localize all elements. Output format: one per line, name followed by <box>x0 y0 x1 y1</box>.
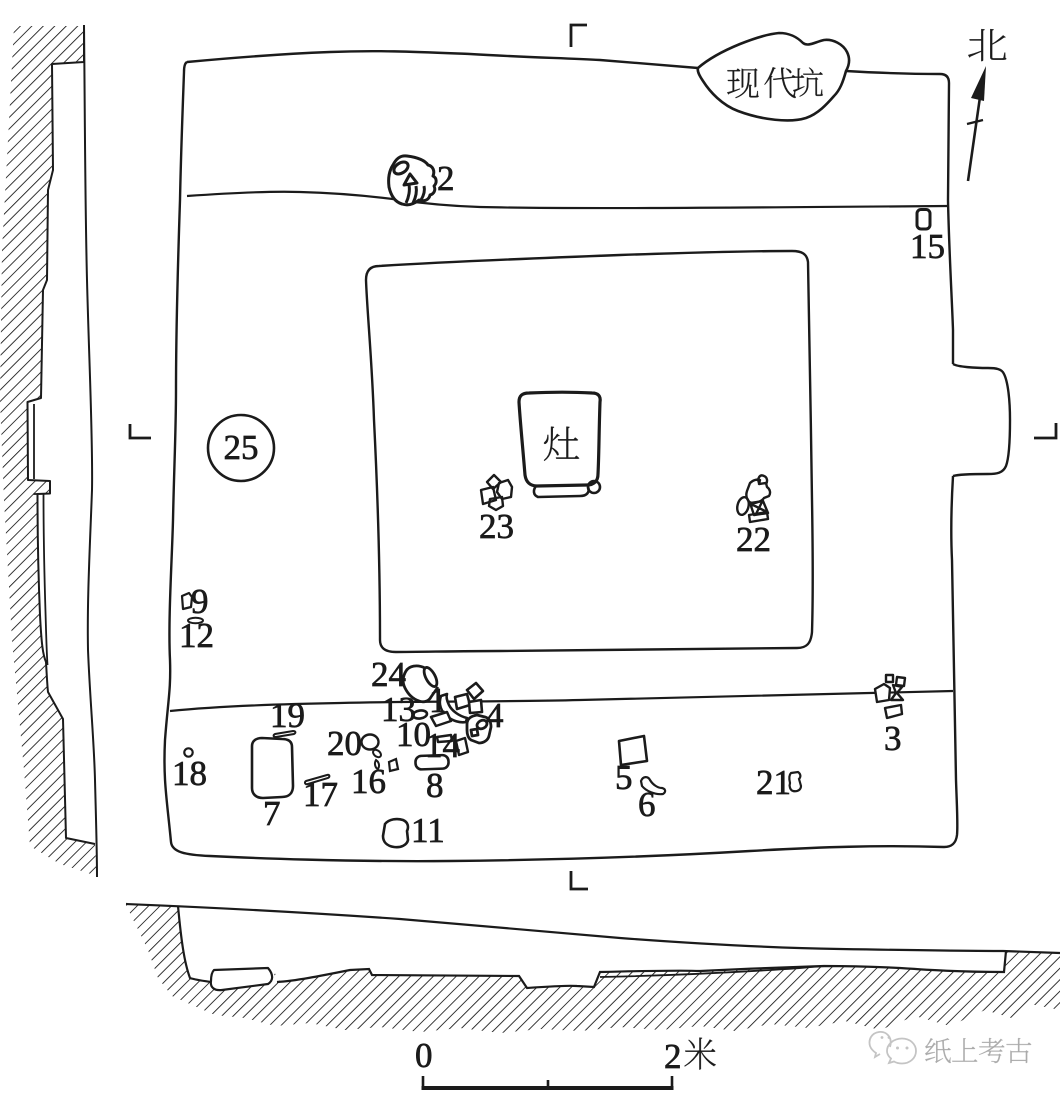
svg-text:15: 15 <box>910 227 945 266</box>
svg-text:4: 4 <box>486 696 504 735</box>
svg-text:5: 5 <box>615 758 633 797</box>
svg-text:17: 17 <box>303 775 338 814</box>
svg-text:19: 19 <box>270 696 305 735</box>
svg-text:3: 3 <box>884 719 902 758</box>
svg-text:21: 21 <box>756 763 791 802</box>
svg-text:2: 2 <box>437 159 455 198</box>
svg-text:23: 23 <box>479 507 514 546</box>
svg-text:20: 20 <box>327 724 362 763</box>
svg-text:7: 7 <box>263 794 281 833</box>
svg-text:0: 0 <box>415 1036 433 1075</box>
svg-text:18: 18 <box>172 754 207 793</box>
svg-text:8: 8 <box>426 766 444 805</box>
svg-text:16: 16 <box>351 762 386 801</box>
svg-text:22: 22 <box>736 520 771 559</box>
svg-text:2: 2 <box>664 1037 682 1076</box>
svg-text:14: 14 <box>425 726 460 765</box>
svg-text:12: 12 <box>179 616 214 655</box>
svg-text:25: 25 <box>224 428 259 467</box>
svg-text:1: 1 <box>429 681 447 720</box>
svg-text:6: 6 <box>638 785 656 824</box>
svg-text:11: 11 <box>411 811 445 850</box>
svg-text:24: 24 <box>371 655 406 694</box>
